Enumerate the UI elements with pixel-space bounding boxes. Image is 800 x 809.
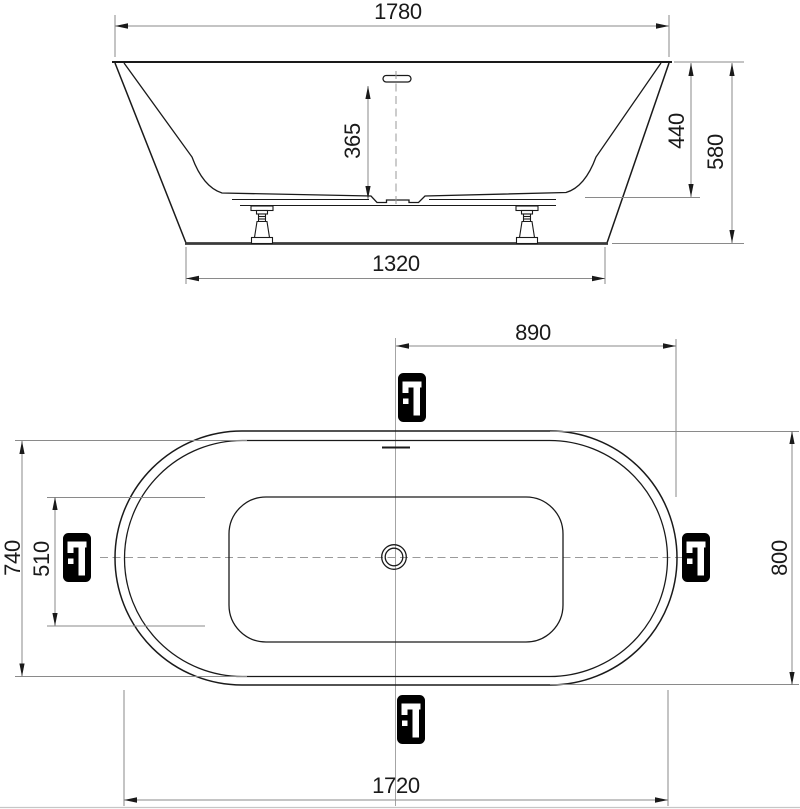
tub-outer-wall-left xyxy=(115,63,186,243)
faucet-icon-bottom xyxy=(397,695,425,744)
technical-drawing-page: 1780 365 440 580 xyxy=(0,0,800,809)
dim-label-800: 800 xyxy=(767,540,792,576)
dim-center-to-end: 890 xyxy=(396,320,676,497)
dim-label-580: 580 xyxy=(703,134,728,170)
faucet-icon-right xyxy=(682,533,710,582)
technical-drawing-canvas: 1780 365 440 580 xyxy=(0,0,800,809)
dim-floor-width: 510 xyxy=(29,497,205,626)
dim-label-740: 740 xyxy=(0,540,25,576)
dim-label-440: 440 xyxy=(664,113,689,149)
dim-inner-depth: 440 xyxy=(585,62,744,198)
leg-right xyxy=(516,206,538,244)
plan-view: 890 740 510 800 xyxy=(0,320,799,806)
tub-inner-rim-plan xyxy=(125,441,668,677)
leg-left xyxy=(251,206,273,244)
dim-inner-length: 1720 xyxy=(124,690,668,806)
dim-overall-width: 800 xyxy=(550,431,799,685)
dim-depth-to-overflow: 365 xyxy=(340,86,371,199)
dim-overall-height: 580 xyxy=(612,63,744,244)
tub-outer-wall-right xyxy=(607,63,669,243)
dim-label-510: 510 xyxy=(29,541,54,577)
tub-inner-basin-profile xyxy=(124,63,661,203)
faucet-icon-left xyxy=(63,533,91,582)
overflow-icon xyxy=(383,76,411,83)
dim-base-length: 1320 xyxy=(186,247,605,284)
faucet-icon-top xyxy=(398,373,426,422)
dim-label-890: 890 xyxy=(515,320,551,345)
dim-overall-length: 1780 xyxy=(115,0,669,57)
side-view: 1780 365 440 580 xyxy=(112,0,744,284)
dim-label-1720: 1720 xyxy=(372,773,420,798)
dim-label-1320: 1320 xyxy=(372,251,420,276)
dim-label-365: 365 xyxy=(340,123,365,159)
dim-label-1780: 1780 xyxy=(374,0,422,24)
